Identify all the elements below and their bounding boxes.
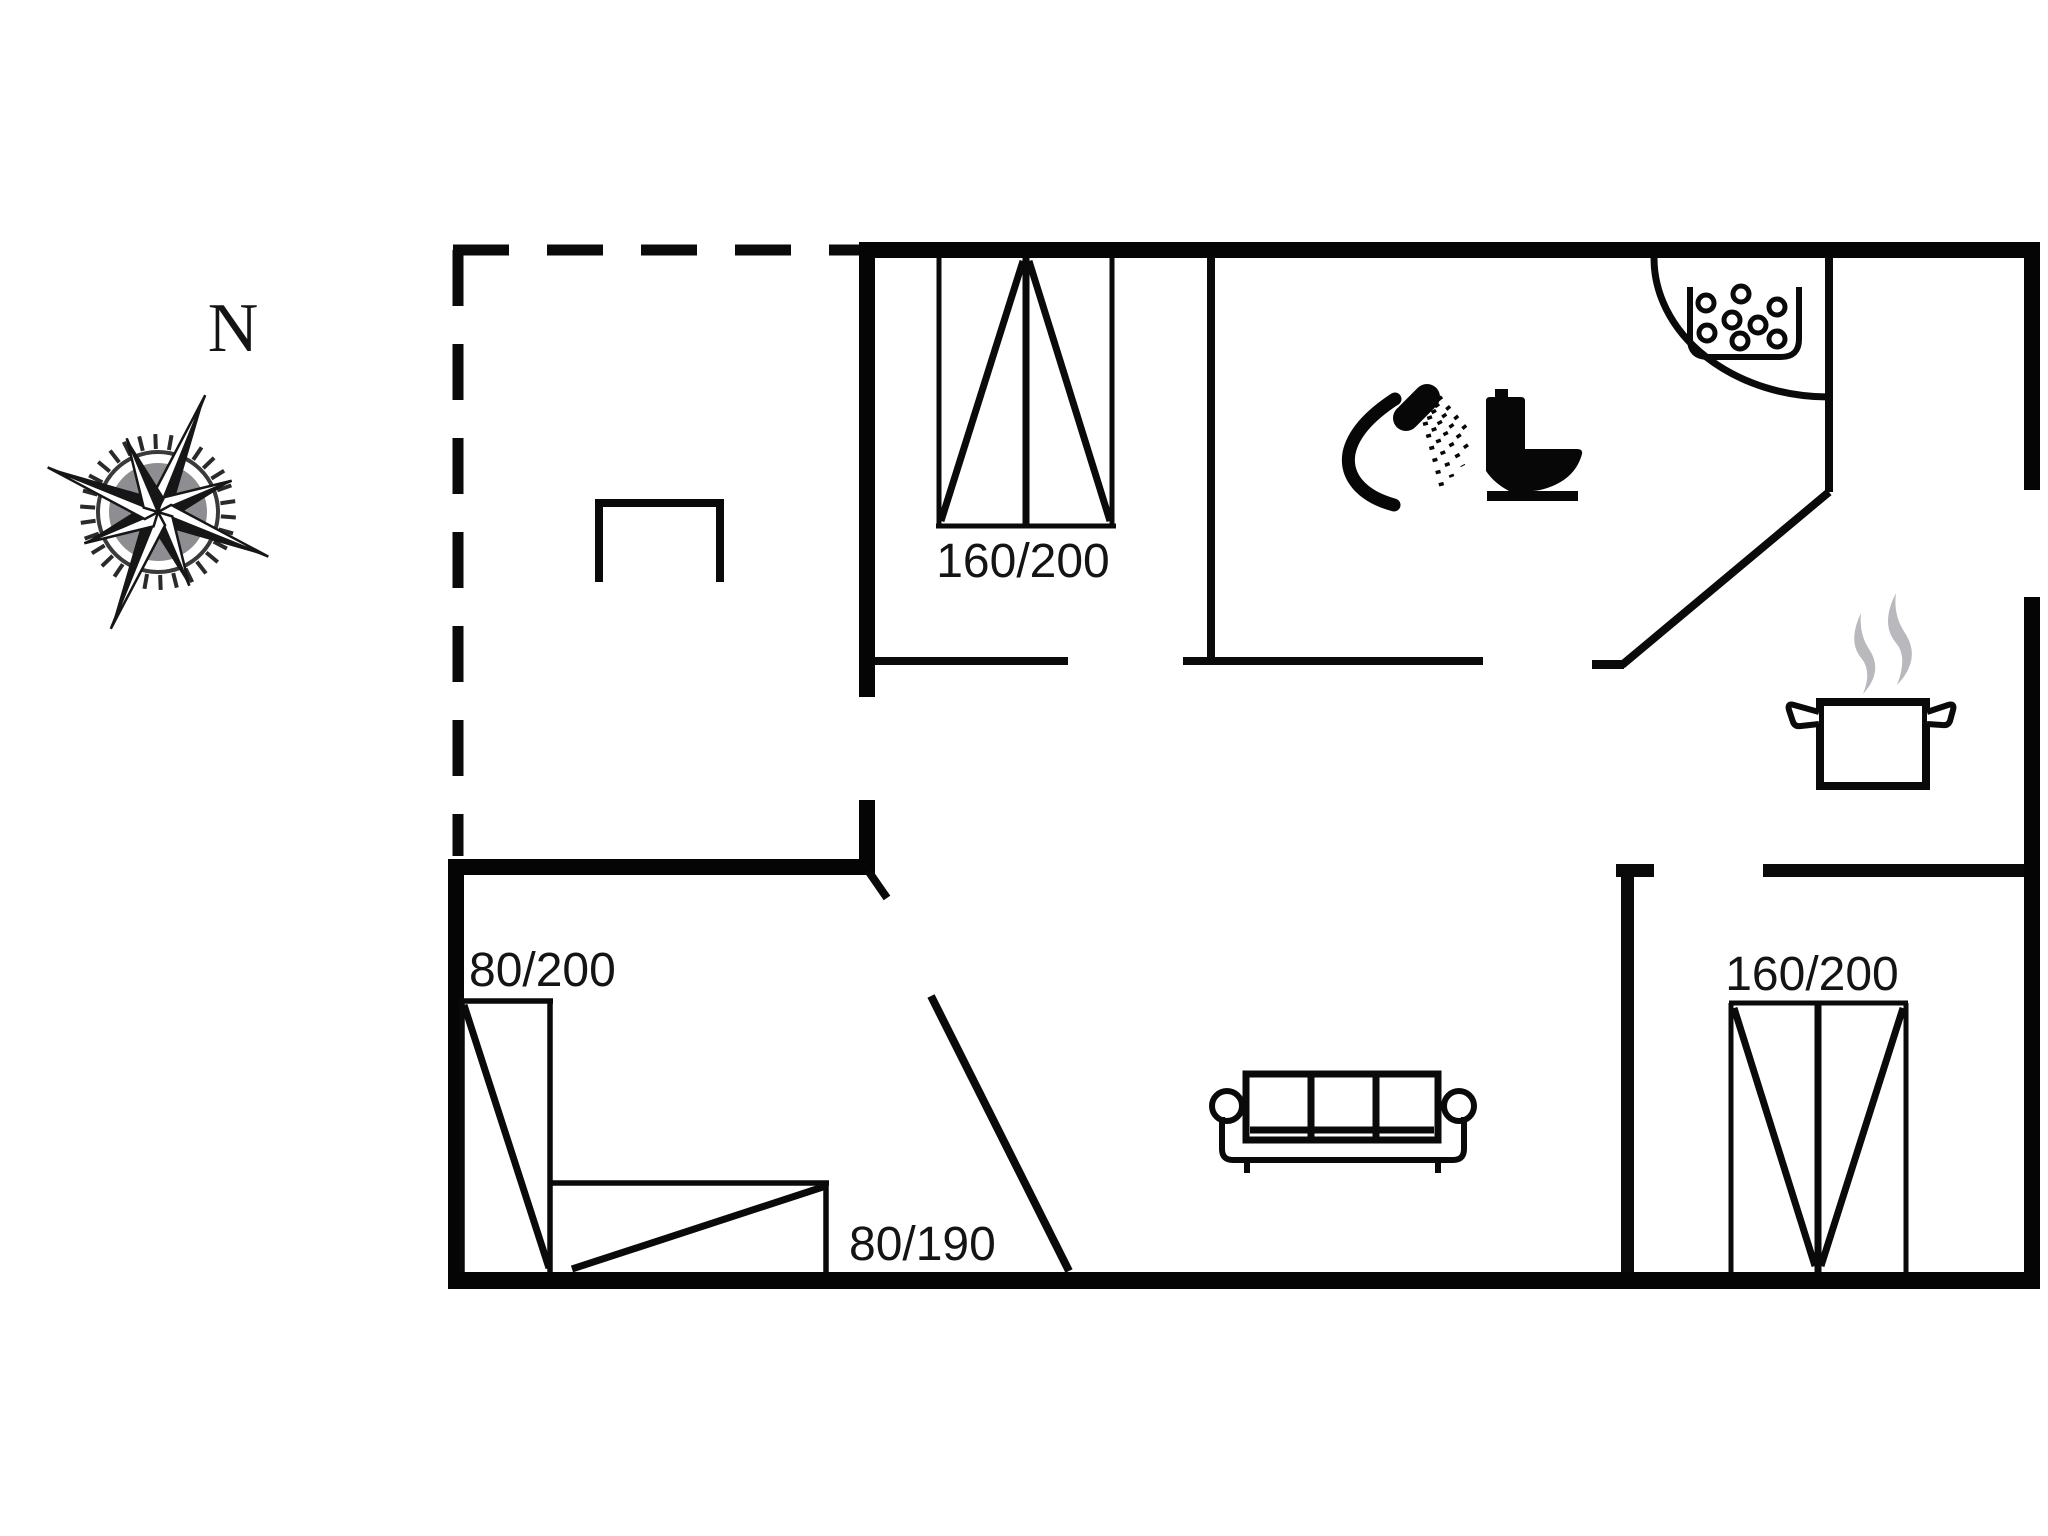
svg-text:160/200: 160/200 [936,535,1110,588]
svg-text:80/190: 80/190 [849,1218,996,1271]
svg-text:160/200: 160/200 [1725,948,1899,1001]
svg-text:N: N [208,290,259,367]
svg-text:80/200: 80/200 [469,944,616,997]
